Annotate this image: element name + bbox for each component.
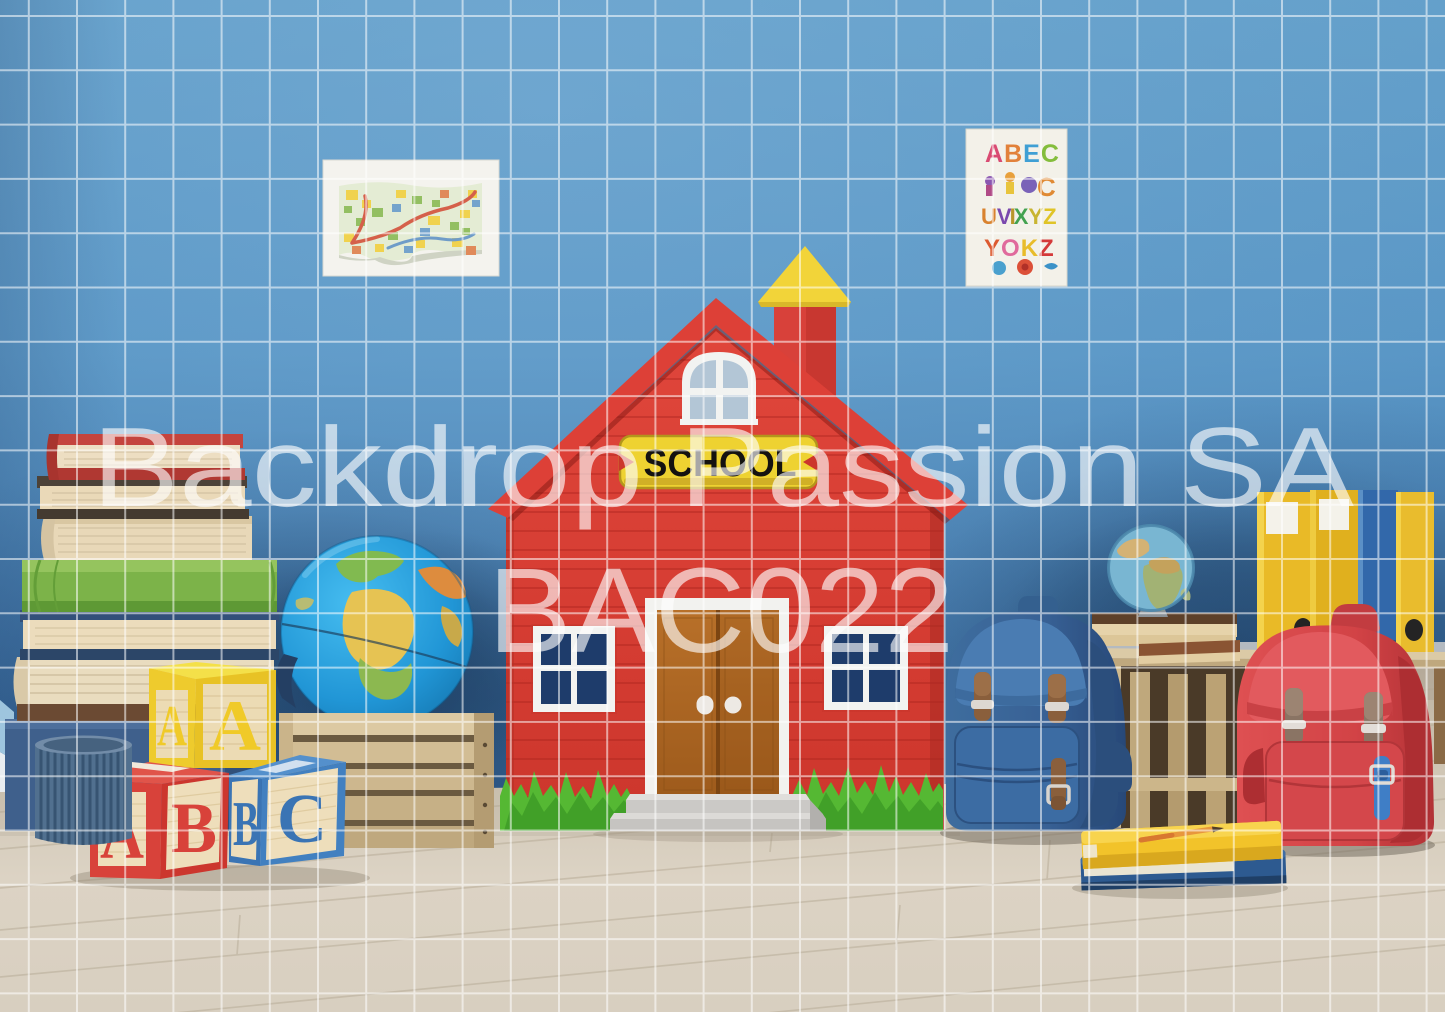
svg-text:C: C <box>1037 172 1056 202</box>
svg-text:Backdrop Passion SA: Backdrop Passion SA <box>92 404 1355 530</box>
svg-text:B: B <box>233 788 259 859</box>
svg-text:B: B <box>171 788 217 868</box>
svg-text:BAC022: BAC022 <box>488 542 954 678</box>
svg-text:ABEC: ABEC <box>985 140 1060 168</box>
svg-text:YOKZ: YOKZ <box>984 235 1055 262</box>
svg-text:C: C <box>277 781 327 858</box>
svg-text:A: A <box>157 693 187 758</box>
svg-text:A: A <box>209 686 261 766</box>
